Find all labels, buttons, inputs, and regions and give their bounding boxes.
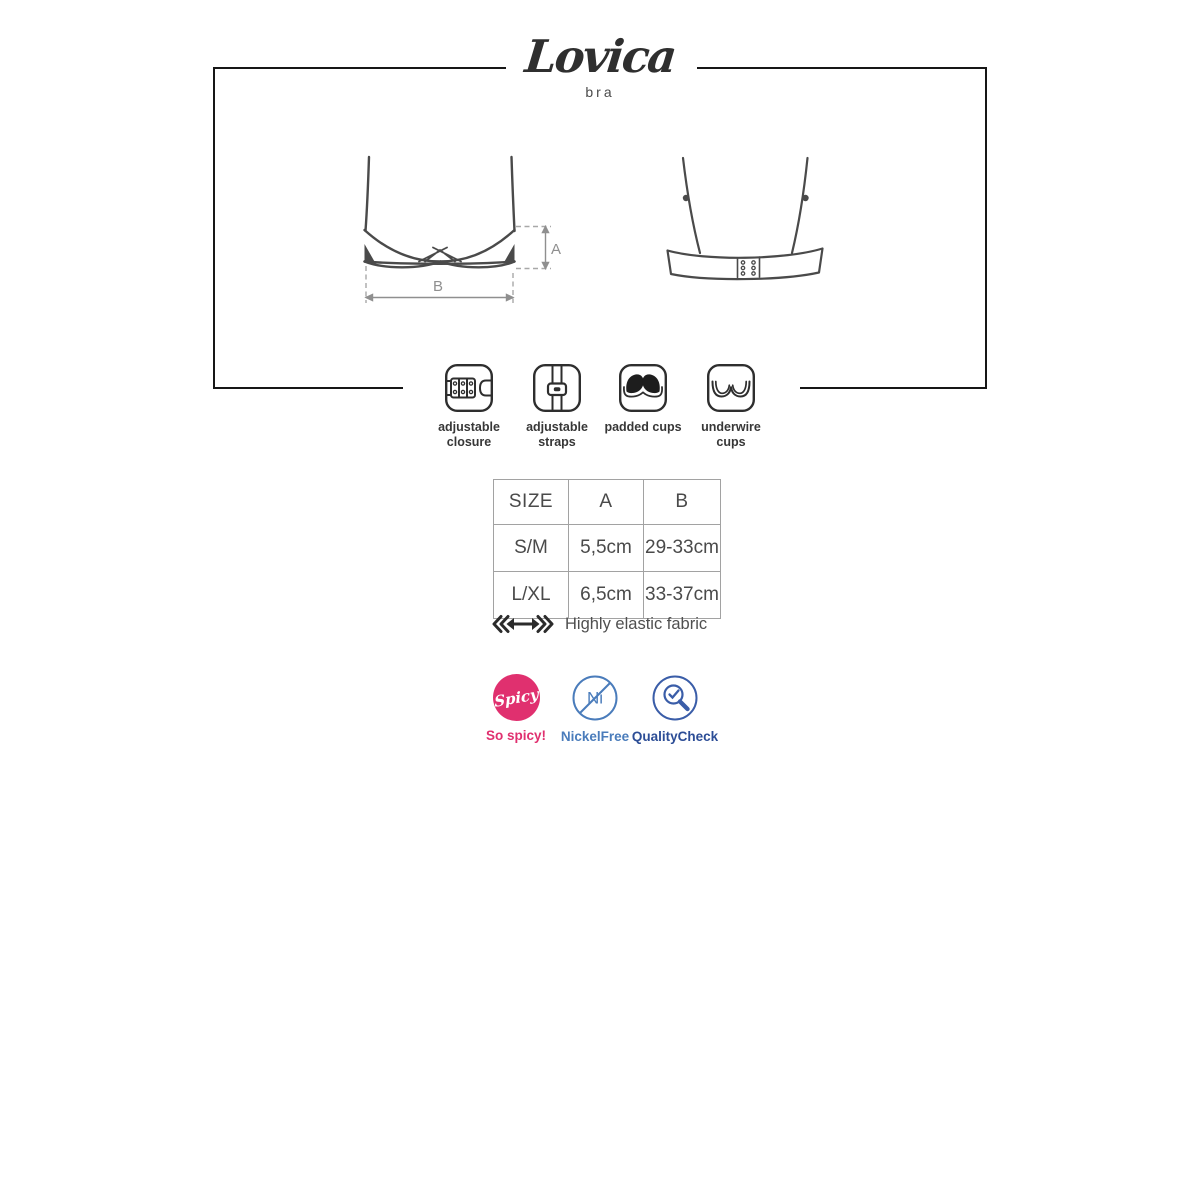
nickel-free-label: NickelFree bbox=[550, 729, 640, 744]
feature-label: underwire cups bbox=[691, 420, 771, 449]
badge-quality-check: QualityCheck bbox=[630, 674, 720, 744]
badge-spicy: Spicy So spicy! bbox=[471, 674, 561, 743]
nickel-free-icon: Ni bbox=[571, 674, 619, 722]
spicy-label: So spicy! bbox=[471, 728, 561, 743]
frame-bottom-right bbox=[800, 387, 987, 389]
back-view-diagram bbox=[650, 145, 850, 290]
size-cell: 6,5cm bbox=[569, 572, 644, 619]
size-table-header: B bbox=[644, 480, 721, 525]
feature-padded-cups: padded cups bbox=[598, 362, 688, 435]
logo-subtitle: bra bbox=[480, 84, 720, 100]
dim-a-arrow-up bbox=[543, 227, 549, 233]
size-table: SIZE A B S/M 5,5cm 29-33cm L/XL 6,5cm 33… bbox=[493, 479, 721, 619]
badge-nickel-free: Ni NickelFree bbox=[550, 674, 640, 744]
logo-title: Lovica bbox=[477, 32, 722, 82]
feature-label: adjustable straps bbox=[517, 420, 597, 449]
frame-top-left bbox=[213, 67, 506, 69]
size-table-header-row: SIZE A B bbox=[494, 480, 721, 525]
back-left-strap bbox=[683, 158, 700, 253]
spicy-icon: Spicy bbox=[493, 674, 540, 721]
quality-check-icon bbox=[651, 674, 699, 722]
size-table-row: L/XL 6,5cm 33-37cm bbox=[494, 572, 721, 619]
feature-underwire-cups: underwire cups bbox=[686, 362, 776, 449]
feature-label: adjustable closure bbox=[429, 420, 509, 449]
spicy-circle-text: Spicy bbox=[493, 685, 538, 711]
front-right-corner bbox=[505, 244, 515, 262]
size-cell: L/XL bbox=[494, 572, 569, 619]
dim-b-label: B bbox=[433, 278, 443, 295]
frame-left bbox=[213, 67, 215, 389]
elastic-fabric-label: Highly elastic fabric bbox=[565, 615, 707, 634]
size-cell: S/M bbox=[494, 525, 569, 572]
quality-check-label: QualityCheck bbox=[630, 729, 720, 744]
size-guide-page: Lovica bra A B bbox=[0, 0, 1200, 1200]
adjustable-closure-icon bbox=[443, 362, 495, 414]
size-cell: 29-33cm bbox=[644, 525, 721, 572]
front-left-strap bbox=[366, 157, 370, 231]
frame-right bbox=[985, 67, 987, 389]
back-left-slider bbox=[683, 195, 689, 201]
size-table-row: S/M 5,5cm 29-33cm bbox=[494, 525, 721, 572]
dim-a-arrow-down bbox=[543, 263, 549, 269]
front-view-diagram: A B bbox=[330, 145, 580, 310]
dim-b-arrow-right bbox=[507, 295, 514, 301]
size-cell: 5,5cm bbox=[569, 525, 644, 572]
size-table-header: A bbox=[569, 480, 644, 525]
front-left-corner bbox=[365, 244, 375, 262]
frame-bottom-left bbox=[213, 387, 403, 389]
feature-adjustable-straps: adjustable straps bbox=[512, 362, 602, 449]
adjustable-straps-icon bbox=[531, 362, 583, 414]
frame-top-right bbox=[697, 67, 987, 69]
dim-b-arrow-left bbox=[366, 295, 373, 301]
front-right-strap bbox=[512, 157, 515, 231]
feature-adjustable-closure: adjustable closure bbox=[424, 362, 514, 449]
back-right-slider bbox=[802, 195, 808, 201]
back-right-strap bbox=[792, 158, 808, 253]
dim-a-label: A bbox=[551, 241, 561, 258]
brand-logo: Lovica bra bbox=[480, 32, 720, 100]
front-cup-top-curve bbox=[365, 230, 515, 262]
size-table-header: SIZE bbox=[494, 480, 569, 525]
elastic-arrow-icon bbox=[492, 613, 554, 635]
feature-label: padded cups bbox=[603, 420, 683, 435]
padded-cups-icon bbox=[617, 362, 669, 414]
underwire-cups-icon bbox=[705, 362, 757, 414]
elastic-fabric-note: Highly elastic fabric bbox=[492, 613, 707, 635]
size-cell: 33-37cm bbox=[644, 572, 721, 619]
